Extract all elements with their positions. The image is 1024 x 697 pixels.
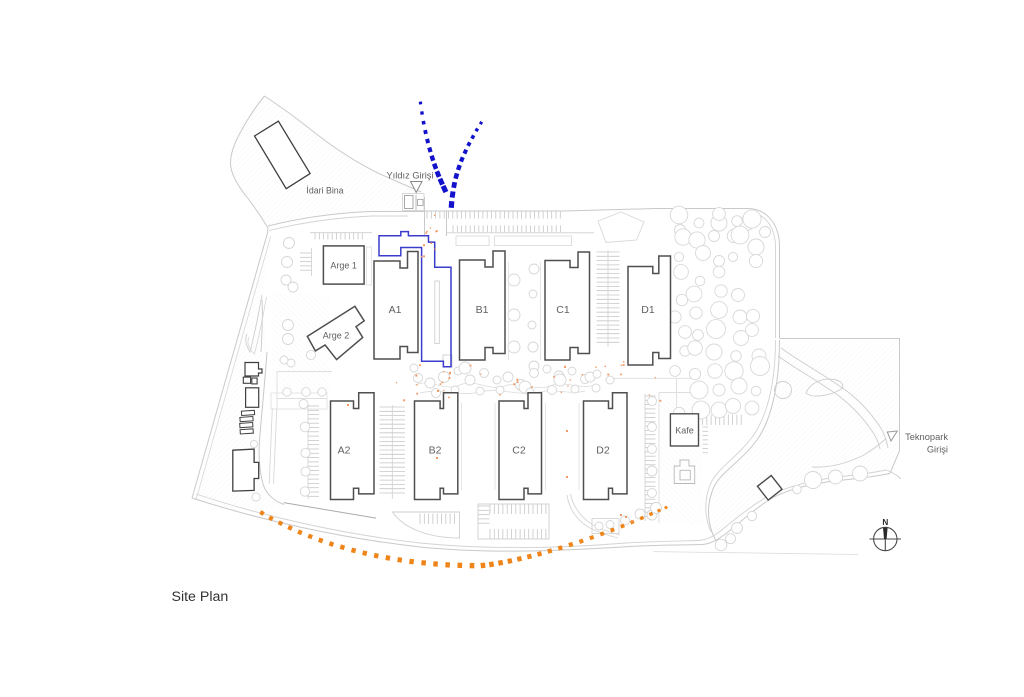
svg-text:B1: B1 [476,304,489,316]
svg-text:Girişi: Girişi [927,445,948,455]
svg-text:Arge 1: Arge 1 [330,261,357,271]
svg-text:D1: D1 [641,304,655,316]
svg-text:C1: C1 [556,304,570,316]
svg-text:A2: A2 [338,445,351,457]
svg-text:İdari Bina: İdari Bina [306,186,343,196]
svg-text:C2: C2 [512,445,526,457]
svg-text:Yıldız Girişi: Yıldız Girişi [386,171,433,181]
svg-text:Arge 2: Arge 2 [323,331,350,341]
svg-text:N: N [882,518,888,527]
svg-text:Teknopark: Teknopark [905,432,948,442]
svg-text:Site Plan: Site Plan [172,589,229,605]
svg-text:Kafe: Kafe [675,426,694,436]
svg-text:D2: D2 [596,445,610,457]
svg-text:B2: B2 [429,445,442,457]
svg-text:A1: A1 [389,304,402,316]
